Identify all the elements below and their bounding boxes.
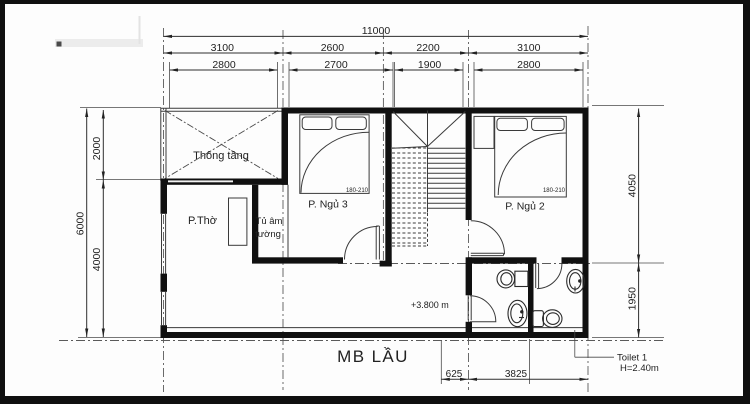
svg-text:4050: 4050 <box>626 174 638 198</box>
svg-text:1900: 1900 <box>418 59 442 71</box>
svg-text:2800: 2800 <box>517 59 541 71</box>
svg-text:3100: 3100 <box>517 42 541 54</box>
svg-text:P. Ngủ 3: P. Ngủ 3 <box>308 199 348 211</box>
svg-text:P. Ngủ 2: P. Ngủ 2 <box>505 201 545 213</box>
svg-text:4000: 4000 <box>91 248 103 272</box>
svg-text:P.Thờ: P.Thờ <box>188 215 217 227</box>
svg-text:Toilet 1: Toilet 1 <box>617 353 647 364</box>
svg-text:2600: 2600 <box>321 42 345 54</box>
svg-text:180-210: 180-210 <box>346 188 369 194</box>
svg-text:11000: 11000 <box>362 25 391 37</box>
svg-text:2700: 2700 <box>324 59 348 71</box>
svg-text:H=2.40m: H=2.40m <box>620 363 659 374</box>
svg-text:Tủ âm: Tủ âm <box>256 216 283 227</box>
svg-text:+3.800 m: +3.800 m <box>411 300 449 310</box>
svg-text:2200: 2200 <box>416 42 440 54</box>
svg-text:MB LẦU: MB LẦU <box>337 347 409 366</box>
svg-text:2000: 2000 <box>91 137 103 161</box>
svg-text:625: 625 <box>446 369 463 380</box>
svg-text:1950: 1950 <box>626 287 638 311</box>
svg-text:Thông tầng: Thông tầng <box>193 150 249 162</box>
svg-text:2800: 2800 <box>212 59 236 71</box>
svg-text:180-210: 180-210 <box>543 188 566 194</box>
svg-text:tường: tường <box>255 229 281 240</box>
svg-text:6000: 6000 <box>75 212 87 236</box>
svg-text:3100: 3100 <box>211 42 235 54</box>
svg-text:3825: 3825 <box>505 369 528 380</box>
